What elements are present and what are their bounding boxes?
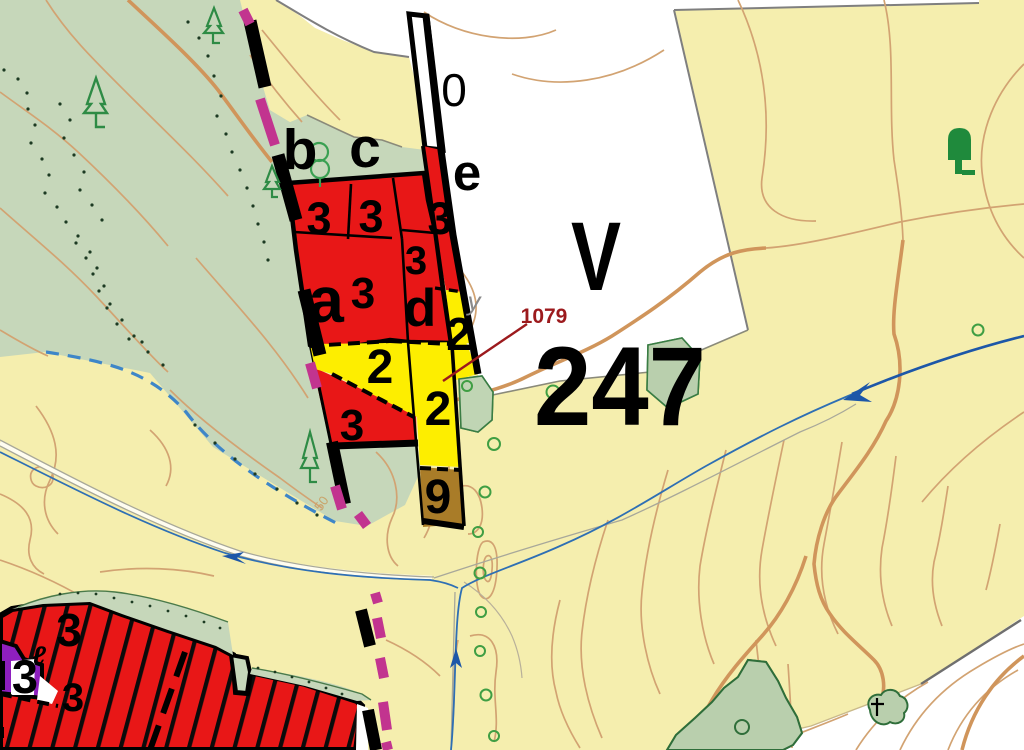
svg-text:9: 9 bbox=[425, 471, 452, 524]
svg-text:c: c bbox=[349, 116, 381, 180]
svg-text:V: V bbox=[571, 202, 621, 311]
svg-text:3: 3 bbox=[340, 401, 364, 450]
svg-text:3: 3 bbox=[351, 269, 375, 318]
svg-text:0: 0 bbox=[441, 64, 467, 116]
svg-text:d: d bbox=[404, 279, 436, 338]
svg-text:2: 2 bbox=[367, 341, 394, 394]
svg-text:y: y bbox=[466, 286, 483, 316]
svg-text:1079: 1079 bbox=[521, 305, 568, 328]
svg-text:3: 3 bbox=[427, 193, 452, 244]
svg-text:b: b bbox=[283, 118, 318, 182]
svg-text:3: 3 bbox=[56, 604, 82, 656]
svg-text:3: 3 bbox=[405, 239, 427, 283]
svg-text:3: 3 bbox=[306, 193, 331, 244]
svg-text:3: 3 bbox=[358, 191, 383, 242]
svg-text:247: 247 bbox=[534, 324, 706, 449]
svg-text:3: 3 bbox=[62, 676, 84, 720]
svg-text:ℓ: ℓ bbox=[32, 641, 47, 671]
svg-text:a: a bbox=[308, 264, 344, 336]
svg-text:2: 2 bbox=[425, 383, 452, 436]
svg-text:e: e bbox=[453, 144, 481, 201]
